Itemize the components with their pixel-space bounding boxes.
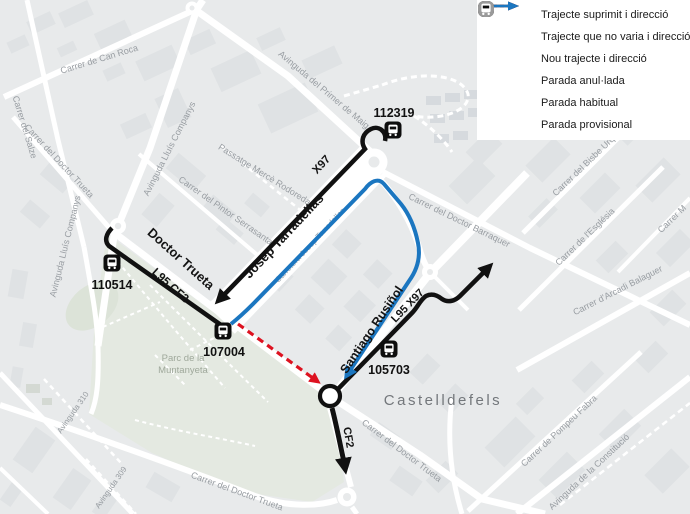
legend-label: Parada provisional xyxy=(533,119,632,131)
legend-label: Parada anul·lada xyxy=(533,75,625,87)
legend-item-unchanged: Trajecte que no varia i direcció xyxy=(485,26,690,48)
legend-label: Nou trajecte i direcció xyxy=(533,53,647,65)
bus-stop-code: 110514 xyxy=(91,278,132,292)
legend-item-new: Nou trajecte i direcció xyxy=(485,48,690,70)
legend-item-regular-stop: Parada habitual xyxy=(485,92,690,114)
park-label-line2: Muntanyeta xyxy=(158,365,208,376)
bus-stop-code: 112319 xyxy=(373,106,414,120)
legend-item-provisional-stop: Parada provisional xyxy=(485,114,690,136)
city-label: Castelldefels xyxy=(384,392,502,409)
legend: Trajecte suprimit i direcció Trajecte qu… xyxy=(477,0,690,140)
legend-label: Parada habitual xyxy=(533,97,618,109)
legend-item-cancelled-stop: Parada anul·lada xyxy=(485,70,690,92)
route-roundabout xyxy=(320,386,340,406)
park-label-line1: Parc de la xyxy=(162,353,205,364)
legend-label: Trajecte que no varia i direcció xyxy=(533,31,690,43)
legend-label: Trajecte suprimit i direcció xyxy=(533,9,668,21)
bus-stop-code: 107004 xyxy=(203,345,245,359)
bus-detour-map: Carrer del Salze Carrer de Can Roca Carr… xyxy=(0,0,690,514)
bus-stop-code: 105703 xyxy=(368,363,410,377)
